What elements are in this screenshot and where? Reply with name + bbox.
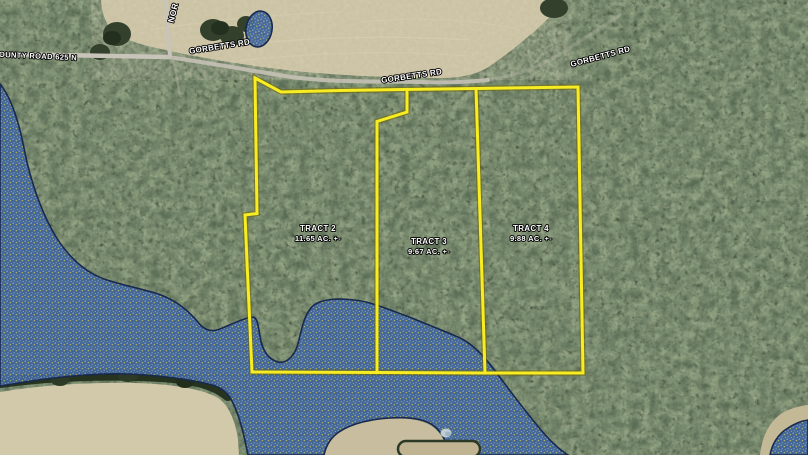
field-southwest [0,383,239,455]
tract-2-acreage: 11.65 AC. +- [295,234,341,243]
tract-4-name: TRACT 4 [513,224,549,233]
field-parcel-rounded [398,441,480,455]
tract-3-name: TRACT 3 [411,237,447,246]
tract-4-acreage: 9.88 AC. +- [510,234,552,243]
plat-map-canvas[interactable]: COUNTY ROAD 625 N GORBETTS RD GORBETTS R… [0,0,808,455]
tract-4-label: TRACT 4 9.88 AC. +- [510,224,552,243]
aerial-map: COUNTY ROAD 625 N GORBETTS RD GORBETTS R… [0,0,808,455]
tract-3-acreage: 9.67 AC. +- [408,247,450,256]
tract-2-label: TRACT 2 11.65 AC. +- [295,224,341,243]
tract-3-label: TRACT 3 9.67 AC. +- [408,237,450,256]
tract-2-name: TRACT 2 [300,224,336,233]
